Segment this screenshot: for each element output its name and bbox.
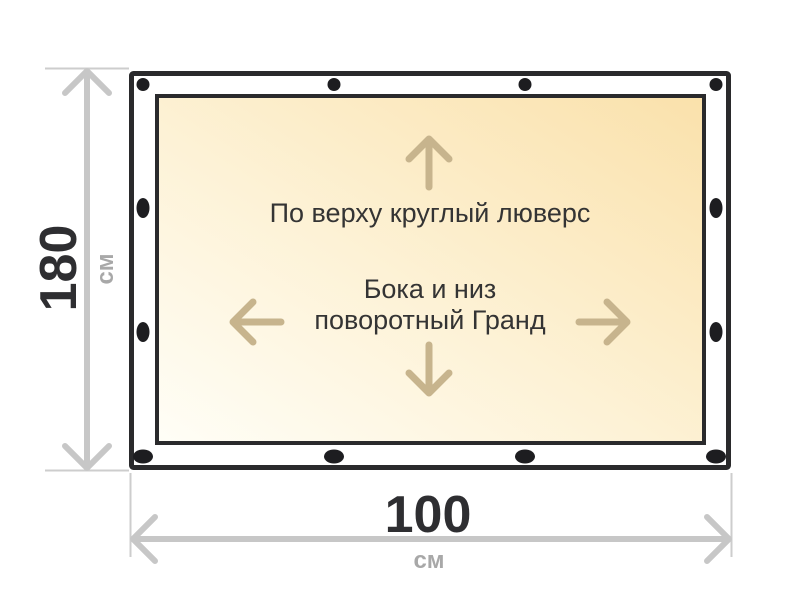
width-dimension: 100 см	[131, 473, 732, 574]
grommet-oval-icon	[324, 450, 344, 464]
width-value: 100	[385, 486, 472, 544]
grommet-round-icon	[710, 78, 723, 91]
grommet-round-icon	[137, 78, 150, 91]
height-unit: см	[92, 253, 119, 284]
grommet-oval-icon	[515, 450, 535, 464]
grommet-round-icon	[328, 78, 341, 91]
height-value: 180	[30, 225, 88, 312]
grommet-oval-icon	[710, 198, 723, 218]
banner-diagram: По верху круглый люверс Бока и низ повор…	[0, 0, 800, 600]
height-dimension: 180 см	[30, 69, 129, 471]
grommet-oval-icon	[133, 450, 153, 464]
grommet-round-icon	[519, 78, 532, 91]
diagram-canvas: По верху круглый люверс Бока и низ повор…	[0, 0, 800, 600]
grommet-oval-icon	[706, 450, 726, 464]
sides-grommet-note-line2: поворотный Гранд	[314, 305, 545, 335]
top-grommet-note: По верху круглый люверс	[270, 198, 591, 228]
grommet-oval-icon	[137, 322, 150, 342]
width-unit: см	[413, 547, 444, 574]
grommet-oval-icon	[137, 198, 150, 218]
grommet-oval-icon	[710, 322, 723, 342]
sides-grommet-note-line1: Бока и низ	[364, 274, 497, 304]
